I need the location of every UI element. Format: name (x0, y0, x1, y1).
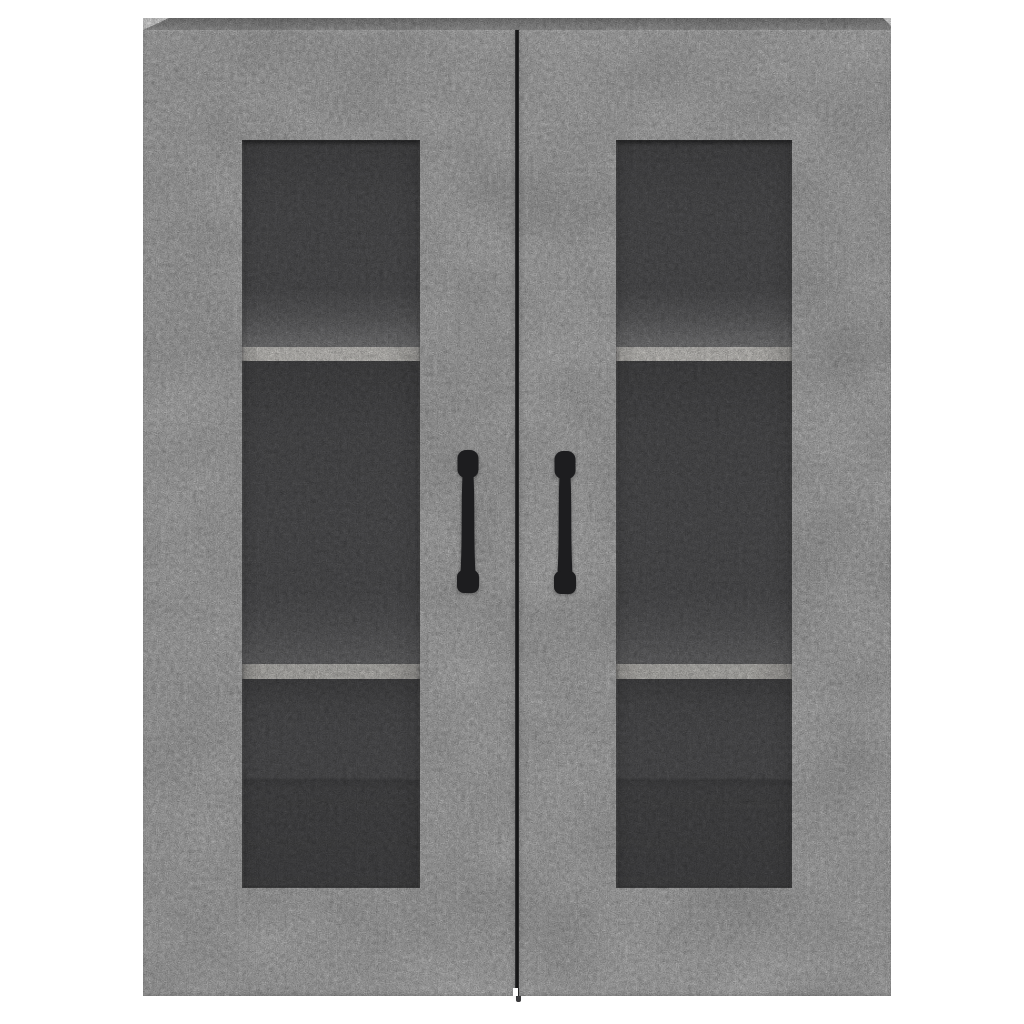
right-door-glass-panel (616, 140, 792, 888)
right-door-compartment-middle (616, 361, 792, 664)
left-door-shelf-upper (242, 347, 420, 361)
cabinet (143, 18, 891, 996)
left-door-handle (450, 448, 486, 598)
left-door-compartment-bottom (242, 679, 420, 888)
door-gap-bottom-light (513, 988, 518, 996)
left-door-compartment-middle (242, 361, 420, 664)
cabinet-top-surface (143, 18, 891, 30)
left-door-glass-panel (242, 140, 420, 888)
left-door-shelf-lower (242, 664, 420, 679)
right-door-compartment-bottom (616, 679, 792, 888)
right-door-compartment-top (616, 140, 792, 347)
right-door-shelf-upper (616, 347, 792, 361)
door-gap-bottom-stub (516, 996, 521, 1002)
left-door-compartment-top (242, 140, 420, 347)
right-door-handle (547, 449, 583, 599)
product-photo (0, 0, 1024, 1024)
right-door-shelf-lower (616, 664, 792, 679)
door-gap (515, 30, 519, 996)
